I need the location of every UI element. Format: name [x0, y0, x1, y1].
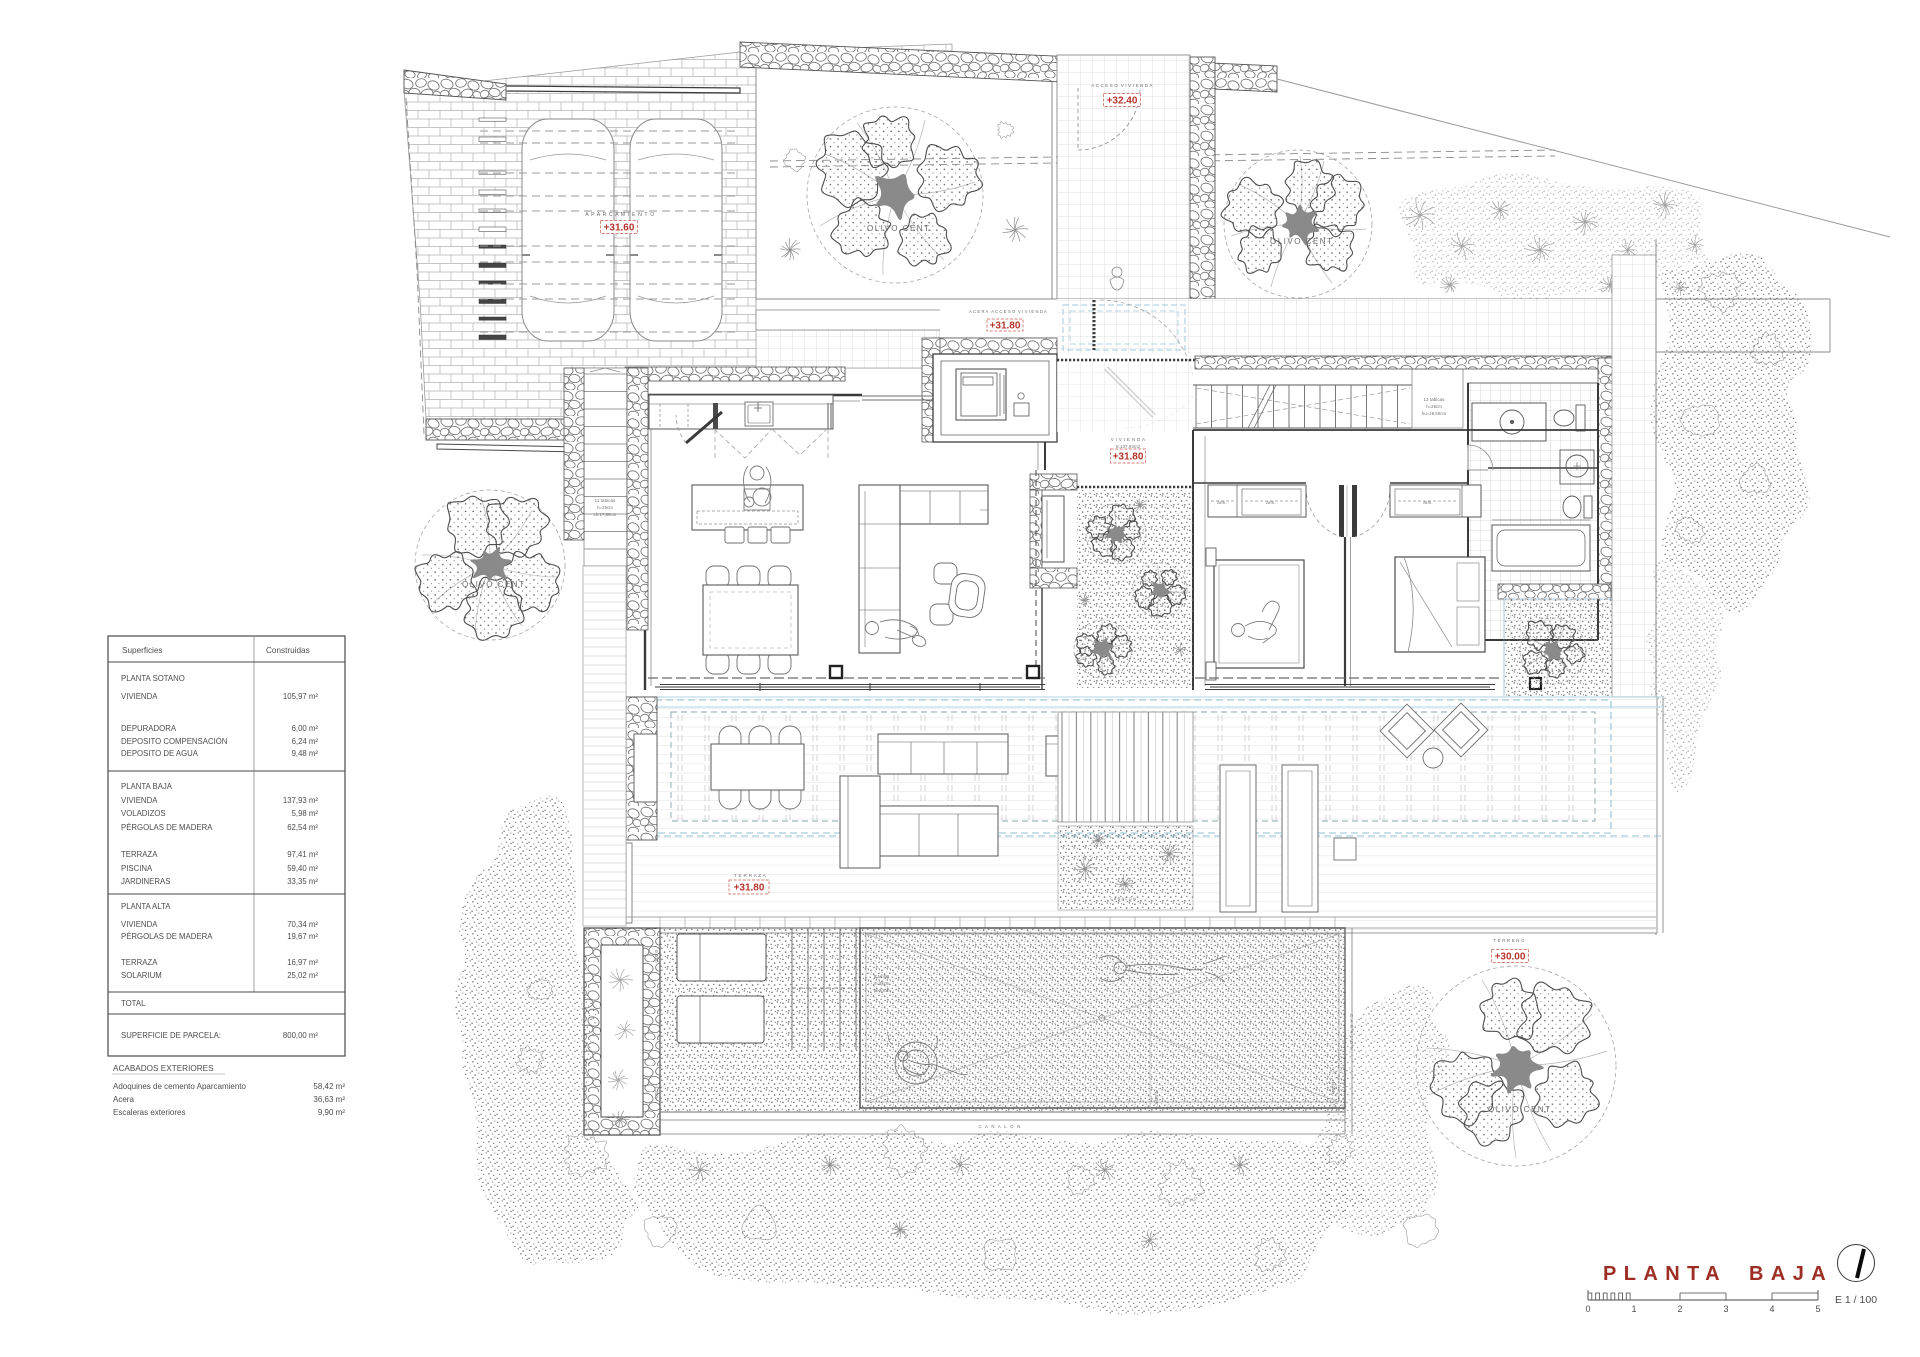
svg-text:36,63 m²: 36,63 m² — [313, 1095, 345, 1104]
svg-text:5: 5 — [1815, 1304, 1820, 1314]
svg-text:97,41 m²: 97,41 m² — [287, 850, 318, 859]
svg-text:137,93 m²: 137,93 m² — [283, 796, 319, 805]
svg-text:OLIVO CENT.: OLIVO CENT. — [462, 580, 528, 589]
svg-text:Adoquines de cemento Aparcamie: Adoquines de cemento Aparcamiento — [113, 1082, 247, 1091]
svg-text:Construidas: Construidas — [266, 646, 310, 655]
svg-text:TERRAZA: TERRAZA — [121, 958, 158, 967]
svg-text:PLANTA BAJA: PLANTA BAJA — [121, 782, 173, 791]
svg-text:PLANTA SOTANO: PLANTA SOTANO — [121, 674, 185, 683]
svg-text:58,42 m²: 58,42 m² — [313, 1082, 345, 1091]
svg-text:OLIVO CENT.: OLIVO CENT. — [1488, 1105, 1554, 1114]
svg-text:25,02 m²: 25,02 m² — [287, 971, 318, 980]
svg-text:S:137,93m2: S:137,93m2 — [1116, 444, 1141, 449]
svg-text:VOLADIZOS: VOLADIZOS — [121, 809, 166, 818]
svg-text:1: 1 — [1631, 1304, 1636, 1314]
svg-text:ACABADOS EXTERIORES: ACABADOS EXTERIORES — [113, 1064, 214, 1073]
svg-text:11 tabicas: 11 tabicas — [595, 498, 616, 503]
svg-text:TERRAZA: TERRAZA — [121, 850, 158, 859]
svg-text:-1,20m: -1,20m — [654, 1085, 659, 1099]
svg-text:800,00 m²: 800,00 m² — [283, 1031, 319, 1040]
svg-text:C A Ñ A L O N: C A Ñ A L O N — [978, 1124, 1021, 1129]
svg-text:PLANTA ALTA: PLANTA ALTA — [121, 902, 171, 911]
svg-text:VIVIENDA: VIVIENDA — [121, 920, 158, 929]
svg-text:DEPOSITO COMPENSACIÓN: DEPOSITO COMPENSACIÓN — [121, 737, 227, 746]
svg-text:PISCINA: PISCINA — [121, 864, 153, 873]
svg-text:2: 2 — [1677, 1304, 1682, 1314]
svg-text:+32.40: +32.40 — [1107, 95, 1138, 106]
svg-text:+31.60: +31.60 — [604, 222, 635, 233]
svg-text:VIVIENDA: VIVIENDA — [121, 692, 158, 701]
svg-text:T E R R E N O: T E R R E N O — [1493, 938, 1525, 943]
svg-text:TOTAL: TOTAL — [121, 999, 146, 1008]
svg-text:DEPOSITO DE AGUA: DEPOSITO DE AGUA — [121, 749, 199, 758]
svg-text:SOLARIUM: SOLARIUM — [121, 971, 162, 980]
svg-text:E 1 / 100: E 1 / 100 — [1835, 1294, 1877, 1306]
svg-text:VIVIENDA: VIVIENDA — [121, 796, 158, 805]
svg-text:Acera: Acera — [113, 1095, 134, 1104]
svg-text:4: 4 — [1769, 1304, 1774, 1314]
svg-text:arm.: arm. — [1266, 500, 1275, 505]
svg-text:h=28cm: h=28cm — [1426, 404, 1442, 409]
svg-text:+31.80: +31.80 — [1113, 451, 1144, 462]
svg-text:ch:17,88cm: ch:17,88cm — [594, 512, 617, 517]
svg-text:33,35 m²: 33,35 m² — [287, 877, 318, 886]
svg-text:62,54 m²: 62,54 m² — [287, 823, 318, 832]
svg-text:PÉRGOLAS DE MADERA: PÉRGOLAS DE MADERA — [121, 823, 213, 832]
svg-text:+31.80: +31.80 — [734, 882, 765, 893]
svg-text:A P A R C A M I E N T O: A P A R C A M I E N T O — [585, 212, 654, 218]
svg-text:9,48 m²: 9,48 m² — [292, 749, 319, 758]
svg-text:V I V I E N D A: V I V I E N D A — [1111, 437, 1146, 442]
svg-text:5,98 m²: 5,98 m² — [292, 809, 319, 818]
svg-text:0,40m: 0,40m — [654, 950, 659, 963]
svg-text:70,34 m²: 70,34 m² — [287, 920, 318, 929]
svg-text:105,97 m²: 105,97 m² — [283, 692, 319, 701]
svg-text:6,24 m²: 6,24 m² — [292, 737, 319, 746]
svg-text:hu=18,50cm: hu=18,50cm — [1422, 411, 1447, 416]
svg-text:SUPERFICIE DE PARCELA:: SUPERFICIE DE PARCELA: — [121, 1031, 221, 1040]
svg-text:JARDINERAS: JARDINERAS — [121, 877, 170, 886]
svg-text:+31.80: +31.80 — [990, 320, 1021, 331]
svg-text:9,90 m²: 9,90 m² — [318, 1108, 345, 1117]
svg-text:-1,50m: -1,50m — [1154, 1090, 1159, 1104]
svg-text:16,97 m²: 16,97 m² — [287, 958, 318, 967]
svg-text:OLIVO CENT.: OLIVO CENT. — [867, 224, 933, 233]
svg-text:arm.: arm. — [1423, 500, 1432, 505]
svg-text:C A Ñ A L O N: C A Ñ A L O N — [1110, 896, 1136, 901]
svg-text:3: 3 — [1723, 1304, 1728, 1314]
svg-text:arm.: arm. — [1217, 500, 1226, 505]
svg-text:OLIVO CENT.: OLIVO CENT. — [1270, 237, 1336, 246]
svg-text:PLANTA BAJA: PLANTA BAJA — [1603, 1263, 1833, 1285]
svg-text:DEPURADORA: DEPURADORA — [121, 724, 177, 733]
svg-text:0: 0 — [1585, 1304, 1590, 1314]
svg-text:59,40 m²: 59,40 m² — [287, 864, 318, 873]
svg-text:h=26cm: h=26cm — [597, 505, 613, 510]
svg-text:6,00 m²: 6,00 m² — [292, 724, 319, 733]
svg-text:Escaleras exteriores: Escaleras exteriores — [113, 1108, 185, 1117]
svg-text:A C C E S O V I V I E N D A: A C C E S O V I V I E N D A — [1091, 83, 1152, 88]
svg-text:T E R R A Z A: T E R R A Z A — [734, 873, 767, 878]
svg-text:+30.00: +30.00 — [1495, 951, 1526, 962]
svg-text:A C E R A A C C E S O V I V: A C E R A A C C E S O V I V I E N D A — [969, 309, 1047, 314]
svg-text:Superficies: Superficies — [122, 646, 163, 655]
svg-text:19,67 m²: 19,67 m² — [287, 932, 318, 941]
svg-text:PÉRGOLAS DE MADERA: PÉRGOLAS DE MADERA — [121, 932, 213, 941]
svg-text:13 tabicas: 13 tabicas — [1423, 397, 1445, 402]
